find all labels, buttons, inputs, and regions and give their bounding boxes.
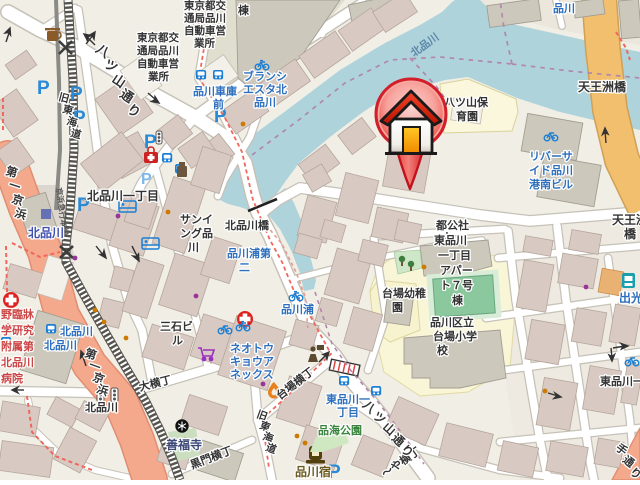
svg-text:東品川一: 東品川一 bbox=[326, 392, 370, 406]
svg-text:川: 川 bbox=[187, 241, 199, 254]
svg-text:ネオトウ: ネオトウ bbox=[230, 342, 274, 355]
svg-text:業所: 業所 bbox=[147, 70, 169, 83]
svg-text:前: 前 bbox=[213, 97, 224, 111]
svg-text:ト７号: ト７号 bbox=[440, 279, 473, 292]
svg-text:北品川: 北品川 bbox=[44, 338, 77, 352]
svg-text:アパー: アパー bbox=[440, 264, 473, 277]
svg-text:品川浦: 品川浦 bbox=[281, 302, 314, 316]
svg-text:通局品川: 通局品川 bbox=[137, 45, 179, 57]
svg-text:東京都交: 東京都交 bbox=[137, 31, 179, 44]
svg-text:品川: 品川 bbox=[553, 2, 575, 15]
svg-text:棟: 棟 bbox=[452, 293, 464, 307]
svg-text:サンイ: サンイ bbox=[180, 213, 213, 226]
svg-text:北品川: 北品川 bbox=[1, 355, 34, 369]
svg-text:P: P bbox=[37, 78, 50, 99]
svg-text:北品川橋: 北品川橋 bbox=[225, 218, 270, 232]
svg-text:病院: 病院 bbox=[1, 371, 23, 385]
svg-text:ング品: ング品 bbox=[180, 226, 213, 240]
svg-text:学研究: 学研究 bbox=[1, 323, 34, 337]
svg-text:一丁目: 一丁目 bbox=[438, 249, 471, 262]
svg-text:北品川一丁目: 北品川一丁目 bbox=[87, 188, 159, 203]
svg-text:北品川: 北品川 bbox=[28, 225, 64, 240]
svg-text:三石ビ: 三石ビ bbox=[160, 319, 193, 333]
svg-text:棟: 棟 bbox=[238, 3, 250, 17]
svg-text:品川: 品川 bbox=[254, 96, 276, 109]
svg-text:東京都交: 東京都交 bbox=[184, 0, 226, 12]
svg-text:P: P bbox=[70, 84, 83, 105]
svg-text:北品川: 北品川 bbox=[60, 324, 93, 338]
svg-text:台場幼稚: 台場幼稚 bbox=[382, 286, 426, 300]
svg-text:P: P bbox=[141, 171, 152, 188]
svg-text:イド品川: イド品川 bbox=[529, 164, 573, 177]
svg-text:橋: 橋 bbox=[624, 226, 637, 241]
svg-text:自動車営: 自動車営 bbox=[184, 24, 226, 37]
svg-text:天王洲橋: 天王洲橋 bbox=[578, 79, 627, 94]
svg-text:東品川: 東品川 bbox=[434, 233, 467, 247]
svg-text:エスタ北: エスタ北 bbox=[243, 82, 287, 96]
svg-text:品川区立: 品川区立 bbox=[430, 315, 474, 329]
svg-text:業所: 業所 bbox=[193, 37, 215, 50]
svg-text:野臨牀: 野臨牀 bbox=[1, 307, 35, 321]
svg-text:ブランシ: ブランシ bbox=[243, 69, 287, 83]
svg-text:自動車営: 自動車営 bbox=[137, 57, 179, 70]
svg-text:ネックス: ネックス bbox=[230, 368, 274, 381]
svg-text:校: 校 bbox=[437, 343, 449, 357]
svg-text:北品川: 北品川 bbox=[85, 400, 118, 414]
svg-text:八ツ山保: 八ツ山保 bbox=[443, 95, 489, 109]
svg-text:出光: 出光 bbox=[619, 290, 640, 305]
svg-text:丁目: 丁目 bbox=[337, 406, 359, 419]
svg-text:品川宿: 品川宿 bbox=[295, 464, 331, 479]
svg-text:品川浦第: 品川浦第 bbox=[227, 246, 271, 260]
svg-text:二: 二 bbox=[239, 262, 250, 274]
svg-text:品川車庫: 品川車庫 bbox=[193, 84, 237, 98]
svg-text:園: 園 bbox=[392, 301, 403, 314]
svg-text:キョウア: キョウア bbox=[230, 355, 274, 368]
svg-text:附属第: 附属第 bbox=[1, 339, 34, 353]
svg-text:天王洲: 天王洲 bbox=[612, 213, 640, 227]
svg-text:台場小学: 台場小学 bbox=[433, 329, 477, 343]
svg-text:ル: ル bbox=[172, 335, 183, 347]
svg-text:善福寺: 善福寺 bbox=[166, 437, 202, 452]
svg-text:P: P bbox=[144, 132, 157, 153]
svg-text:育園: 育園 bbox=[456, 109, 478, 123]
svg-text:品海公園: 品海公園 bbox=[318, 423, 362, 437]
svg-text:通局品川: 通局品川 bbox=[184, 13, 226, 25]
svg-text:都公社: 都公社 bbox=[435, 218, 469, 232]
svg-text:東品川一: 東品川一 bbox=[600, 374, 640, 388]
svg-text:港南ビル: 港南ビル bbox=[529, 177, 573, 191]
svg-text:リバーサ: リバーサ bbox=[529, 150, 573, 163]
